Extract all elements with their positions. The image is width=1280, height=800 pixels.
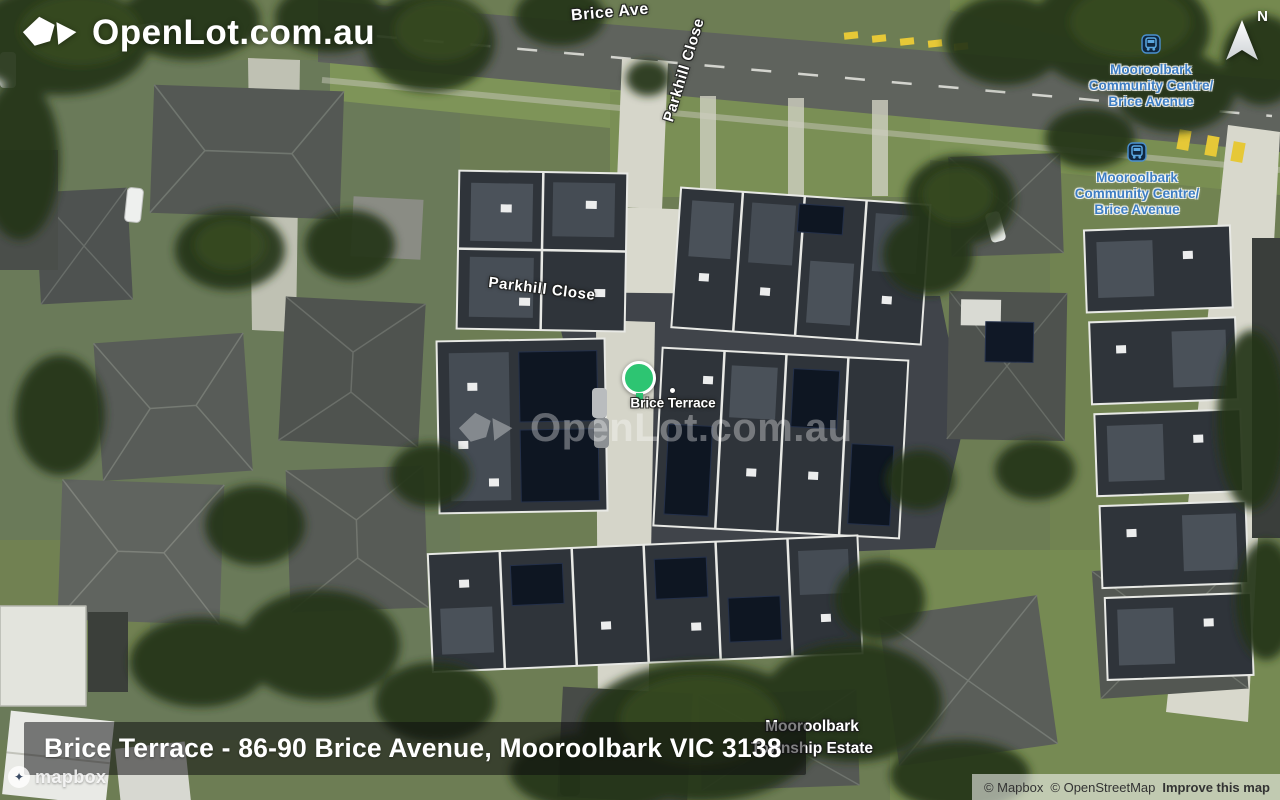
address-banner-text: Brice Terrace - 86-90 Brice Avenue, Moor… bbox=[44, 733, 782, 764]
bus-icon bbox=[1127, 142, 1147, 167]
address-banner: Brice Terrace - 86-90 Brice Avenue, Moor… bbox=[24, 722, 806, 775]
transit-stop-line: Brice Avenue bbox=[1042, 202, 1232, 218]
compass-control[interactable]: N bbox=[1222, 8, 1268, 66]
attribution-bar: © Mapbox © OpenStreetMap Improve this ma… bbox=[972, 774, 1280, 800]
transit-stop-line: Mooroolbark bbox=[1056, 62, 1246, 78]
openlot-logo[interactable]: OpenLot.com.au bbox=[22, 10, 375, 56]
transit-stop-line: Community Centre/ bbox=[1056, 78, 1246, 94]
mapbox-logo[interactable]: ✦ mapbox bbox=[8, 766, 106, 788]
transit-stop-label: Mooroolbark Community Centre/ Brice Aven… bbox=[1056, 34, 1246, 110]
openlot-logo-icon bbox=[22, 10, 80, 56]
property-marker-pin[interactable] bbox=[622, 361, 656, 395]
attribution-mapbox-link[interactable]: © Mapbox bbox=[984, 780, 1043, 795]
map-point-dot bbox=[670, 388, 675, 393]
mapbox-logo-icon: ✦ bbox=[8, 766, 30, 788]
marker-head bbox=[622, 361, 656, 395]
mapbox-wordmark: mapbox bbox=[35, 767, 106, 788]
marker-label: Brice Terrace bbox=[630, 396, 715, 411]
bus-icon bbox=[1141, 34, 1161, 59]
transit-stop-line: Brice Avenue bbox=[1056, 94, 1246, 110]
transit-stop-line: Community Centre/ bbox=[1042, 186, 1232, 202]
attribution-osm-link[interactable]: © OpenStreetMap bbox=[1050, 780, 1155, 795]
openlot-logo-text: OpenLot.com.au bbox=[92, 13, 375, 53]
transit-stop-label: Mooroolbark Community Centre/ Brice Aven… bbox=[1042, 142, 1232, 218]
improve-this-map-link[interactable]: Improve this map bbox=[1162, 780, 1270, 795]
north-arrow-icon bbox=[1222, 18, 1262, 64]
map-canvas[interactable]: Brice Ave Parkhill Close Parkhill Close … bbox=[0, 0, 1280, 800]
transit-stop-line: Mooroolbark bbox=[1042, 170, 1232, 186]
